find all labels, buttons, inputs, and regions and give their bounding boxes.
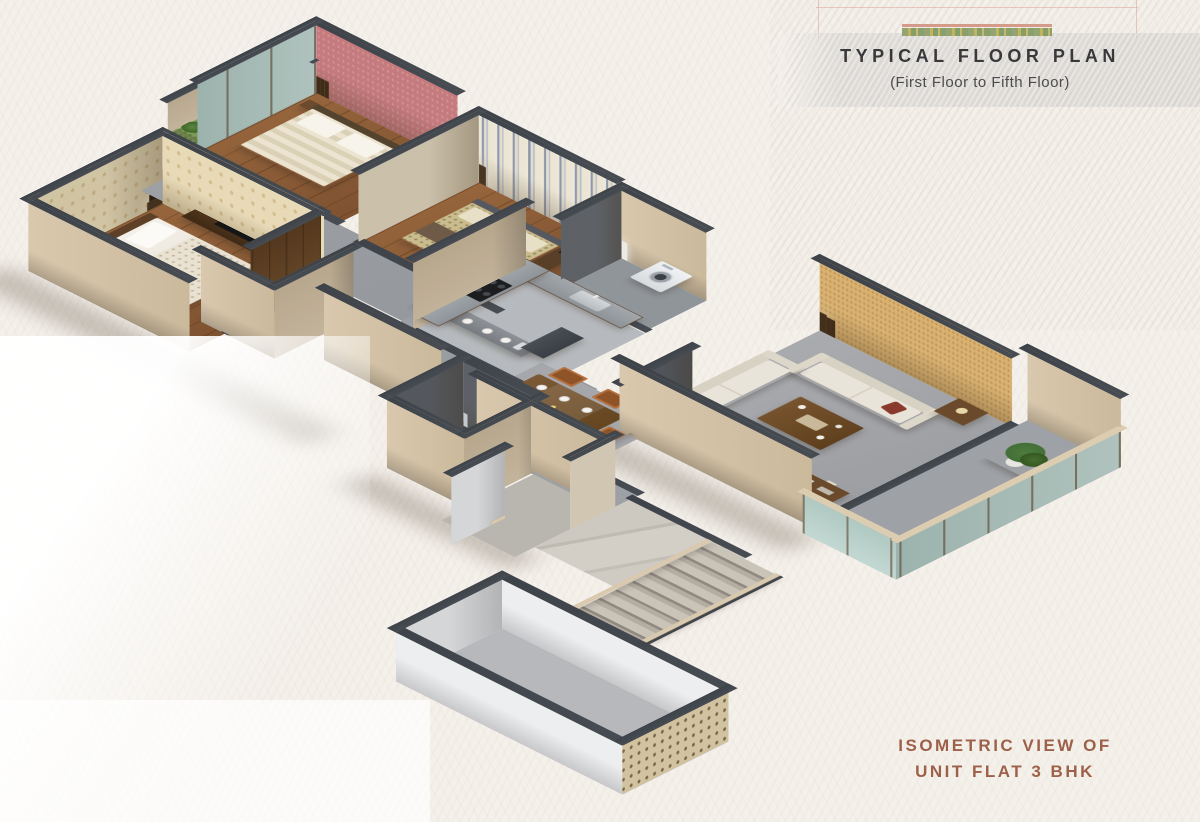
wall-cap — [468, 369, 616, 443]
master-bedroom-floor — [28, 204, 324, 352]
lobby-floor — [535, 499, 747, 605]
dining-floor — [439, 363, 667, 477]
lobby-floor-2 — [441, 474, 606, 557]
title-block: TYPICAL FLOOR PLAN (First Floor to Fifth… — [800, 46, 1160, 91]
entry-wall — [477, 374, 607, 512]
passage-floor — [477, 429, 641, 511]
wall-cap — [443, 441, 514, 477]
wall-cap — [614, 684, 738, 746]
side-table — [933, 398, 988, 426]
living-tv-half-wall — [620, 346, 693, 431]
wall-cap — [378, 391, 473, 439]
lobby-entry-door — [570, 434, 615, 529]
kitchen-counter-sink — [505, 259, 642, 328]
kitchen-floor — [413, 274, 645, 390]
wall-trim — [504, 425, 645, 496]
wall-cap — [388, 570, 512, 632]
living-south-wall — [620, 358, 812, 527]
master-bedroom-south-wall — [28, 198, 189, 351]
console-table — [778, 471, 850, 507]
kitchen-counter-hob — [416, 259, 549, 325]
wall-trim — [555, 284, 653, 333]
utility-side-wall — [561, 186, 622, 289]
wall-cap — [307, 16, 466, 96]
sofa-north — [786, 352, 942, 430]
wall-cap — [470, 106, 626, 184]
wall-cap — [1018, 344, 1129, 400]
bedroom-3-dresser — [523, 244, 584, 274]
master-bedroom-north-wall — [163, 131, 324, 284]
living-balcony-glass-rail-south — [803, 491, 896, 579]
decorative-strip-band — [902, 28, 1052, 36]
guide-line — [816, 7, 1138, 8]
wall-cap — [612, 182, 715, 233]
dining-set — [441, 355, 663, 466]
wall-trim — [406, 326, 540, 393]
wall-cap — [611, 342, 702, 387]
page-subtitle: (First Floor to Fifth Floor) — [800, 74, 1160, 91]
utility-north-wall — [622, 186, 707, 301]
wall-cap — [552, 182, 630, 221]
wall-cap — [266, 242, 363, 290]
nightstand — [299, 99, 322, 110]
living-room-floor — [620, 330, 1012, 526]
wall-trim — [221, 280, 331, 335]
lift-side-wall — [387, 357, 463, 468]
wall-cap — [493, 570, 737, 692]
caption-block: ISOMETRIC VIEW OF UNIT FLAT 3 BHK — [860, 736, 1150, 782]
wall-trim — [431, 410, 570, 479]
brochure-page: TYPICAL FLOOR PLAN (First Floor to Fifth… — [0, 0, 1200, 822]
nightstand — [399, 150, 422, 161]
caption-line-1: ISOMETRIC VIEW OF — [860, 736, 1150, 756]
wall-cap — [272, 39, 321, 63]
corridor-floor — [131, 153, 510, 343]
sofa-south — [709, 440, 838, 504]
staircase-steps — [577, 542, 776, 642]
stair-stringer — [573, 539, 712, 609]
stair-side-door — [451, 446, 505, 546]
stair-stringer — [641, 573, 780, 643]
stair-void-north-wall — [502, 576, 728, 741]
wall-cap — [890, 425, 1128, 544]
wall-cap — [456, 392, 550, 439]
utility-bathroom-floor — [561, 258, 707, 331]
coffee-table — [757, 396, 864, 450]
washing-machine — [629, 261, 693, 293]
wall-cap — [454, 353, 549, 401]
tv-dresser — [181, 207, 290, 261]
wall-trim — [642, 574, 783, 645]
balcony-2-parapet-west — [168, 44, 280, 135]
bedroom-2-accent-wall — [316, 20, 457, 163]
bedroom-3-stripe-wall — [479, 110, 618, 252]
wall-cap — [189, 16, 325, 84]
building-shadow — [574, 432, 816, 553]
lift-back-wall — [463, 357, 541, 469]
bedroom-2-floor — [197, 93, 457, 223]
lift-east-wall — [465, 396, 541, 507]
wall-cap — [159, 39, 287, 103]
stair-void-lower-floor — [396, 628, 728, 794]
balcony-plant — [984, 438, 1063, 478]
bedroom-3-side-wall — [359, 110, 479, 243]
wall-cap — [242, 206, 330, 250]
wall-trim — [162, 132, 203, 153]
bed-3 — [399, 198, 567, 282]
wall-cap — [405, 198, 536, 263]
wall-trim — [625, 495, 752, 559]
balcony-plant-small — [851, 529, 899, 553]
wall-cap — [378, 353, 472, 400]
paper-white-fade — [0, 700, 430, 822]
loveseat-south — [635, 404, 737, 455]
lift-south-wall — [387, 395, 465, 507]
stair-void-south-wall — [396, 629, 622, 794]
decorative-strip — [902, 24, 1052, 36]
bedroom-2-balcony-floor — [168, 78, 312, 150]
kitchen-tall-unit — [521, 327, 585, 359]
foyer-cabinet — [359, 335, 433, 372]
master-bed — [67, 213, 262, 311]
page-title: TYPICAL FLOOR PLAN — [800, 46, 1160, 67]
balcony-plants — [174, 78, 303, 142]
table-lamp-glow — [44, 252, 75, 268]
wall-cap — [350, 106, 488, 175]
wall-cap — [610, 354, 820, 459]
wall-cap — [154, 127, 333, 216]
bedroom-2-balcony-glass-door — [197, 20, 316, 152]
stair-jali-screen — [622, 690, 728, 795]
decorative-strip-line — [902, 24, 1052, 27]
bed-2 — [238, 104, 405, 187]
master-bedroom-window-wall — [28, 131, 162, 271]
wall-cap — [192, 245, 283, 291]
wall-cap — [20, 127, 172, 203]
caption-line-2: UNIT FLAT 3 BHK — [860, 762, 1150, 782]
lift-floor — [387, 429, 541, 506]
wall-cap — [797, 488, 903, 541]
living-balcony-glass-rail — [896, 427, 1121, 579]
master-bedroom-wardrobe-wall — [250, 210, 321, 318]
wall-trim — [353, 238, 506, 314]
wall-trim — [804, 421, 1019, 528]
balcony-2-parapet-north — [279, 44, 312, 95]
living-balcony-north-wall — [1028, 348, 1121, 467]
living-balcony-floor — [803, 420, 1121, 579]
wall-cap — [562, 430, 625, 461]
bedroom-3-floor — [359, 183, 618, 312]
wall-cap — [19, 194, 198, 283]
wall-trim — [190, 148, 346, 226]
building-shadow — [341, 472, 539, 571]
kitchen-back-wall — [413, 202, 526, 331]
sofa-west — [650, 350, 804, 427]
stair-void-west-wall — [396, 576, 502, 681]
crockery-shelf — [414, 294, 540, 357]
